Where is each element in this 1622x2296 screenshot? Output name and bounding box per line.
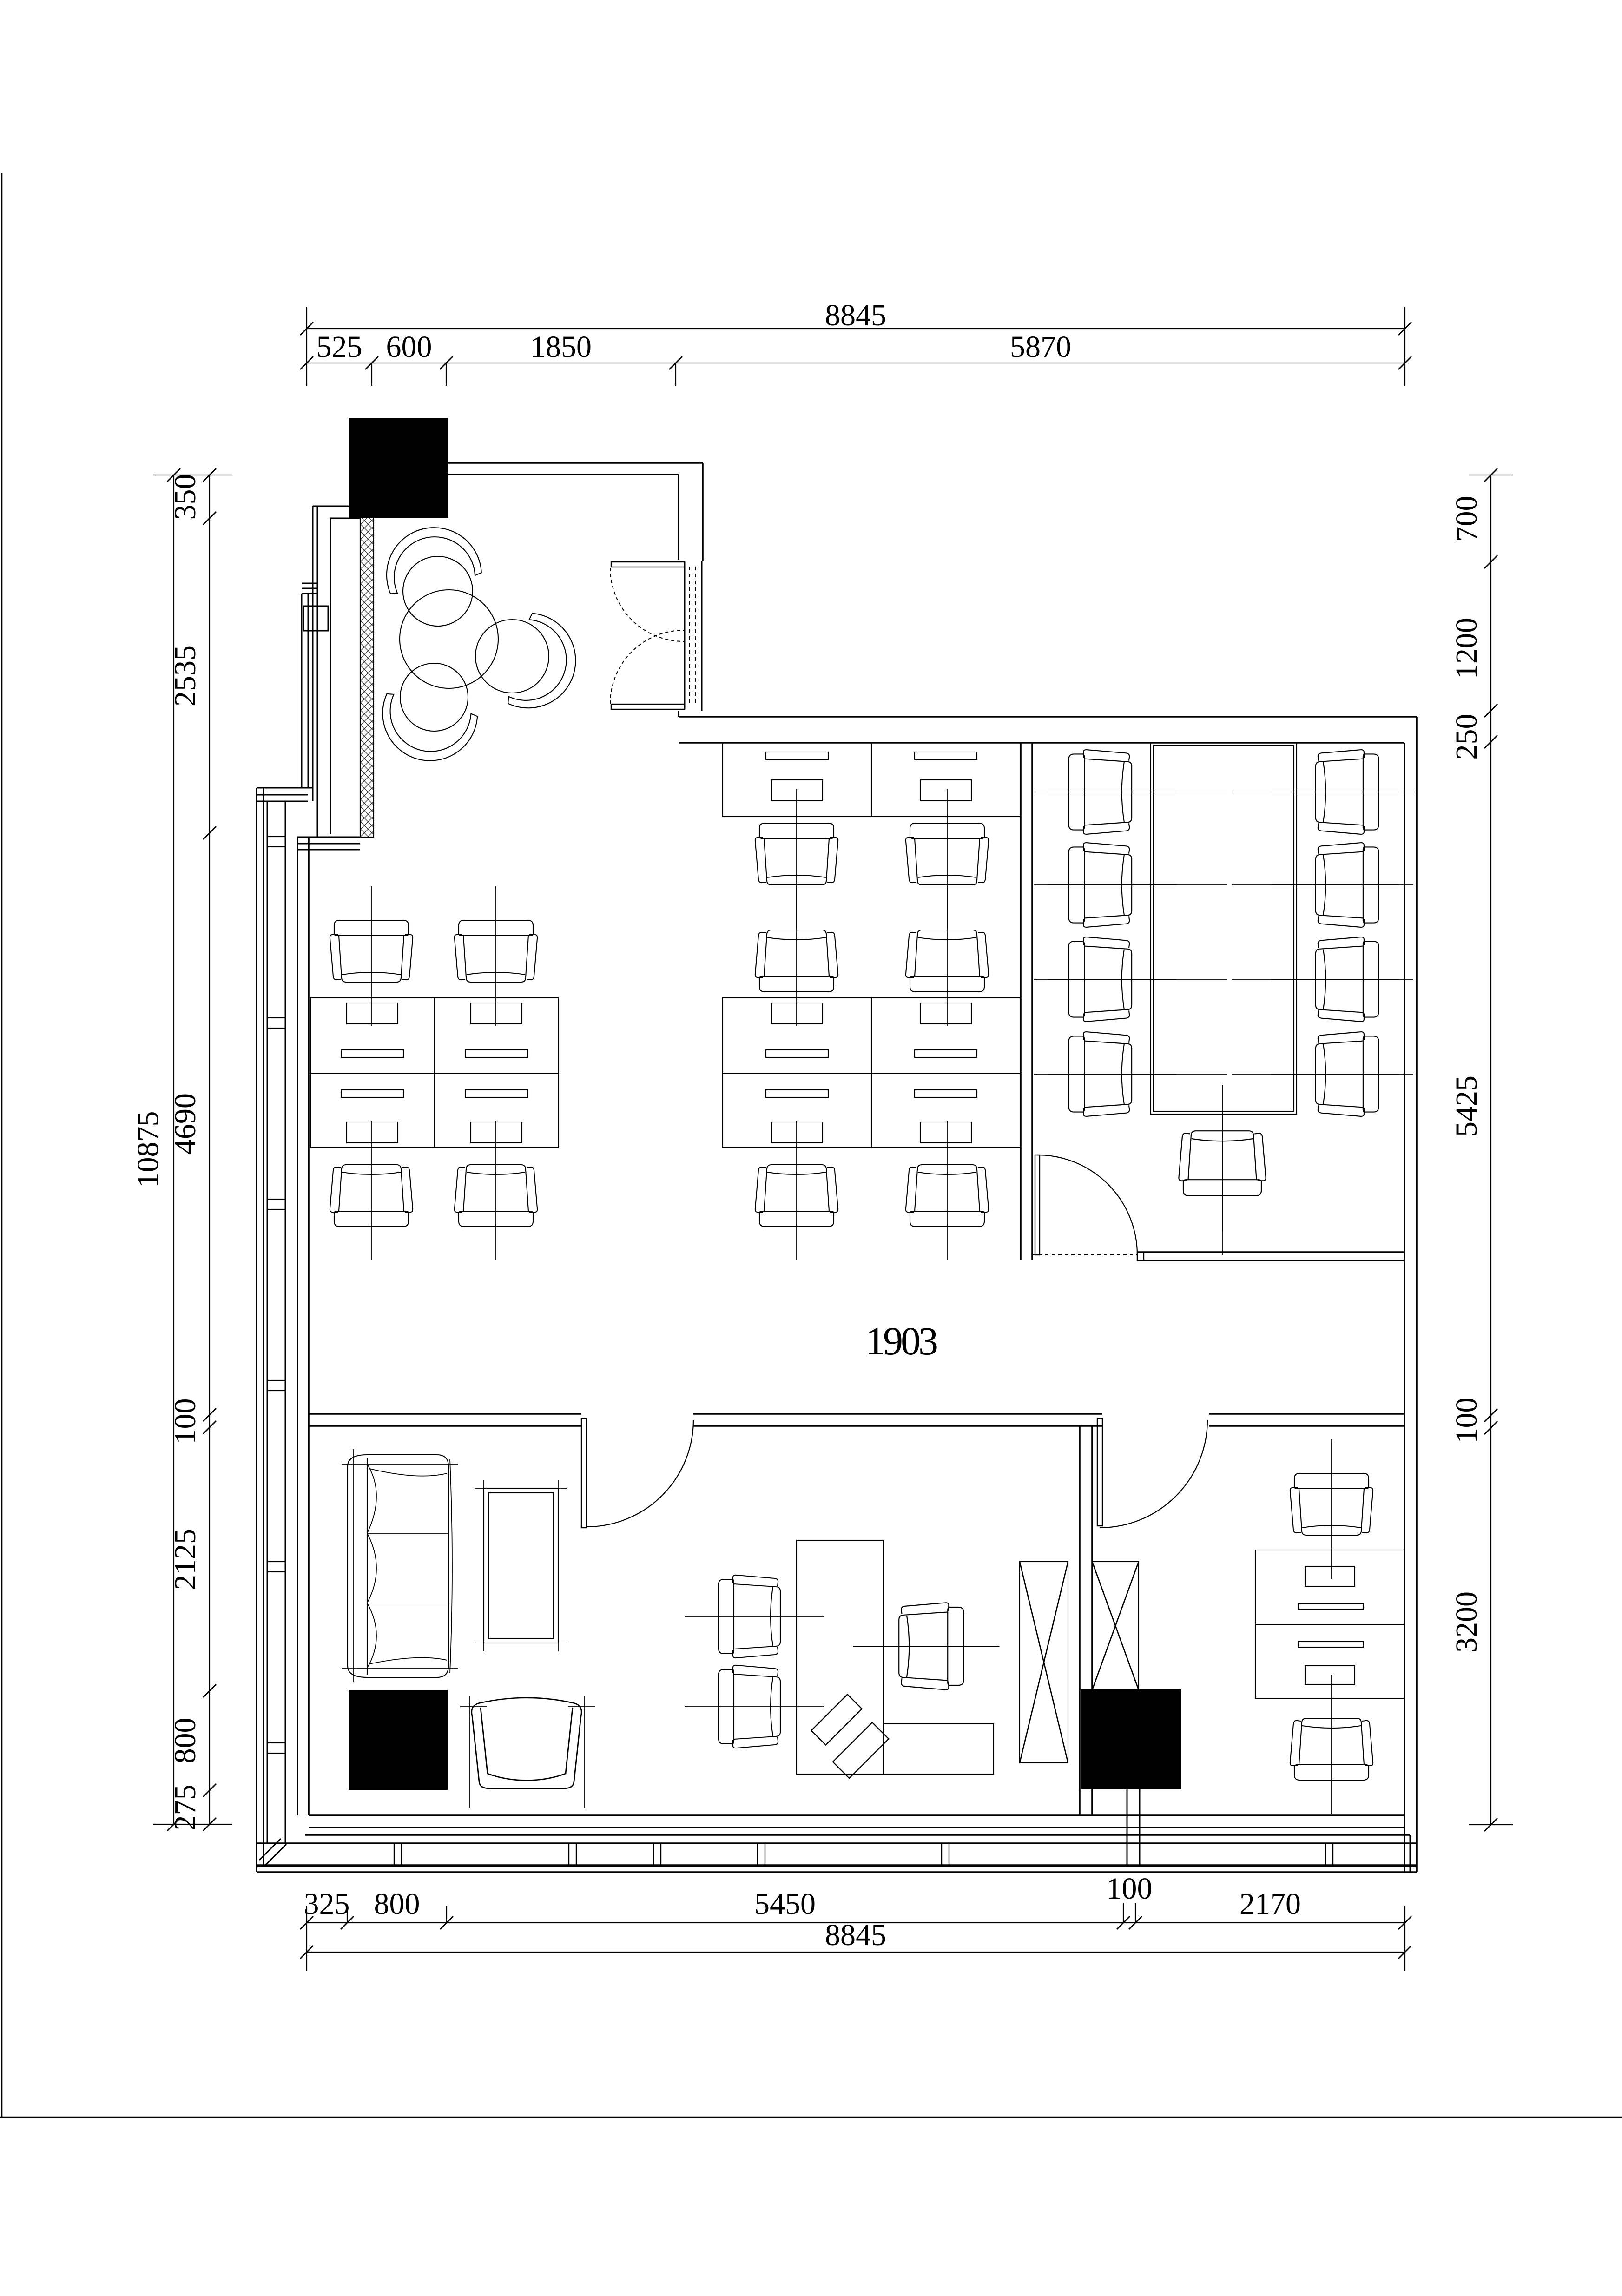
svg-text:600: 600 <box>386 330 432 364</box>
svg-text:100: 100 <box>168 1399 202 1445</box>
svg-text:700: 700 <box>1450 496 1484 542</box>
svg-text:1903: 1903 <box>865 1319 937 1363</box>
svg-text:1200: 1200 <box>1450 618 1484 679</box>
svg-text:250: 250 <box>1450 714 1484 760</box>
svg-text:5425: 5425 <box>1450 1075 1484 1137</box>
svg-text:800: 800 <box>168 1718 202 1764</box>
svg-text:5870: 5870 <box>1010 330 1071 364</box>
svg-text:525: 525 <box>316 330 363 364</box>
svg-text:100: 100 <box>1450 1398 1484 1444</box>
svg-text:4690: 4690 <box>168 1093 202 1155</box>
svg-text:800: 800 <box>374 1887 420 1921</box>
svg-text:8845: 8845 <box>825 1918 886 1952</box>
svg-text:2170: 2170 <box>1240 1887 1301 1921</box>
svg-text:1850: 1850 <box>530 330 592 364</box>
svg-text:350: 350 <box>168 474 202 520</box>
svg-text:5450: 5450 <box>754 1887 816 1921</box>
svg-text:10875: 10875 <box>131 1111 165 1188</box>
svg-text:2535: 2535 <box>168 645 202 706</box>
svg-text:3200: 3200 <box>1450 1591 1484 1653</box>
svg-text:325: 325 <box>304 1887 350 1921</box>
svg-text:100: 100 <box>1107 1872 1153 1906</box>
svg-text:2125: 2125 <box>168 1529 202 1590</box>
svg-text:8845: 8845 <box>825 298 886 332</box>
svg-text:275: 275 <box>168 1785 202 1831</box>
